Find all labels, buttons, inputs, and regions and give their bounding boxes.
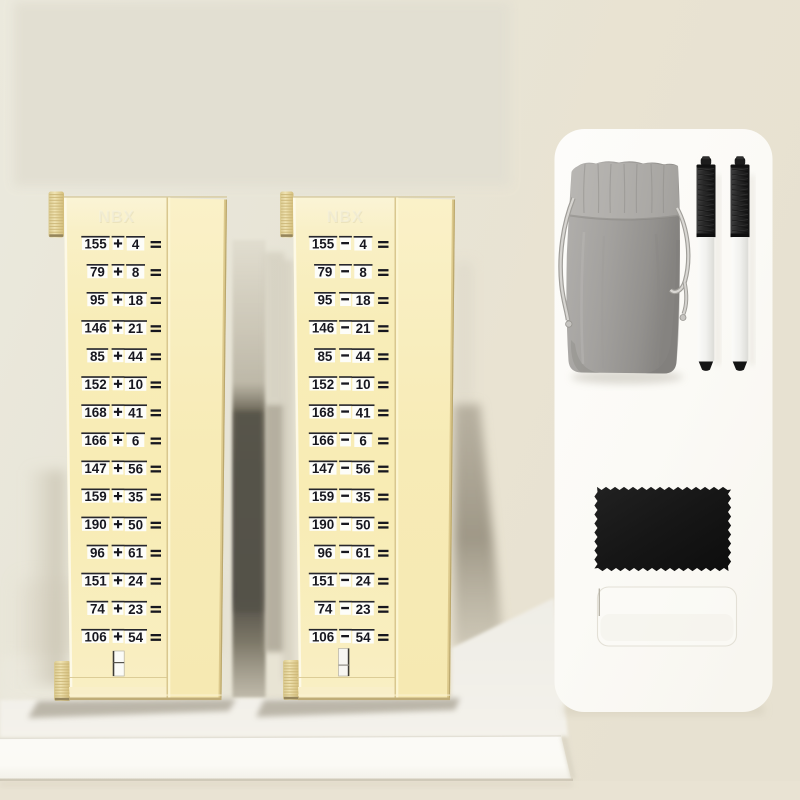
svg-text:8: 8 <box>359 265 367 280</box>
svg-text:159: 159 <box>84 489 106 504</box>
svg-text:147: 147 <box>84 461 106 476</box>
svg-text:21: 21 <box>128 321 143 336</box>
svg-text:155: 155 <box>312 237 335 252</box>
svg-text:85: 85 <box>90 349 105 364</box>
svg-text:4: 4 <box>359 237 367 252</box>
svg-text:79: 79 <box>90 265 105 280</box>
svg-text:56: 56 <box>128 462 143 477</box>
svg-text:159: 159 <box>312 489 334 504</box>
svg-text:95: 95 <box>317 293 332 308</box>
svg-text:146: 146 <box>84 321 106 336</box>
svg-text:74: 74 <box>90 601 105 616</box>
svg-text:24: 24 <box>356 574 371 589</box>
svg-text:NBX: NBX <box>98 208 135 226</box>
svg-text:166: 166 <box>312 433 334 448</box>
svg-text:151: 151 <box>84 573 107 588</box>
svg-text:41: 41 <box>128 405 143 420</box>
svg-text:8: 8 <box>132 265 140 280</box>
svg-text:168: 168 <box>84 405 107 420</box>
svg-text:147: 147 <box>312 461 334 476</box>
svg-text:96: 96 <box>317 545 332 560</box>
svg-text:50: 50 <box>128 518 143 533</box>
svg-text:NBX: NBX <box>327 208 364 226</box>
svg-text:79: 79 <box>317 265 332 280</box>
svg-text:41: 41 <box>356 405 371 420</box>
svg-text:61: 61 <box>128 546 143 561</box>
svg-text:95: 95 <box>90 293 105 308</box>
svg-text:190: 190 <box>312 517 334 532</box>
svg-text:56: 56 <box>356 462 371 477</box>
svg-text:54: 54 <box>128 630 143 645</box>
svg-text:166: 166 <box>84 433 106 448</box>
svg-text:96: 96 <box>90 545 105 560</box>
svg-text:50: 50 <box>356 518 371 533</box>
svg-text:54: 54 <box>356 630 371 645</box>
svg-text:152: 152 <box>312 377 334 392</box>
svg-text:6: 6 <box>132 433 139 448</box>
svg-text:155: 155 <box>84 237 107 252</box>
svg-text:151: 151 <box>312 573 335 588</box>
svg-text:35: 35 <box>356 490 371 505</box>
svg-text:21: 21 <box>356 321 371 336</box>
svg-text:10: 10 <box>356 377 371 392</box>
svg-text:106: 106 <box>84 630 106 645</box>
svg-text:23: 23 <box>128 602 143 617</box>
svg-text:146: 146 <box>312 321 334 336</box>
svg-text:18: 18 <box>356 293 371 308</box>
svg-text:10: 10 <box>128 377 143 392</box>
svg-text:35: 35 <box>128 490 143 505</box>
svg-text:6: 6 <box>359 433 366 448</box>
svg-text:152: 152 <box>84 377 106 392</box>
svg-text:18: 18 <box>128 293 143 308</box>
svg-text:85: 85 <box>317 349 332 364</box>
svg-text:190: 190 <box>84 517 106 532</box>
svg-text:106: 106 <box>312 630 334 645</box>
svg-text:23: 23 <box>356 602 371 617</box>
svg-text:168: 168 <box>312 405 335 420</box>
svg-text:44: 44 <box>356 349 371 364</box>
svg-text:61: 61 <box>356 546 371 561</box>
svg-text:74: 74 <box>317 601 332 616</box>
svg-text:24: 24 <box>128 574 143 589</box>
svg-text:44: 44 <box>128 349 143 364</box>
svg-text:4: 4 <box>132 237 140 252</box>
